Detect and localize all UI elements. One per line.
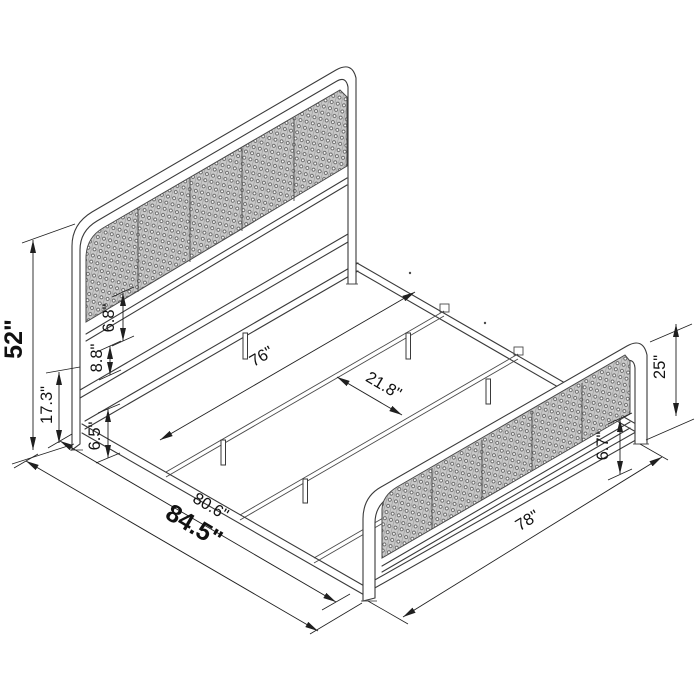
- headboard: [70, 67, 358, 450]
- dim-label-frame-floor-clearance: 6.5": [86, 421, 104, 450]
- dim-label-footboard-rail-gap: 6.7": [594, 431, 612, 460]
- dim-label-footboard-height: 25": [651, 355, 669, 379]
- dim-label-headboard-leg-height: 17.3": [38, 386, 56, 424]
- footboard: [361, 343, 649, 601]
- headboard-cane-panel: [86, 90, 347, 322]
- dim-label-overall-height: 52": [0, 319, 28, 359]
- isometric-bed-drawing: 52" 17.3" 6.8" 8.8" 6.5" 25" 6.7" 76" 21…: [0, 0, 700, 700]
- dim-label-slat-spacing: 21.8": [363, 368, 405, 403]
- dim-label-overall-width: 78": [512, 507, 542, 535]
- dim-label-headboard-panel-gap: 6.8": [100, 303, 118, 332]
- bed-frame-dimension-diagram: 52" 17.3" 6.8" 8.8" 6.5" 25" 6.7" 76" 21…: [0, 0, 700, 700]
- dim-label-headboard-rail-gap: 8.8": [88, 343, 106, 372]
- dim-label-slat-span-width: 76": [246, 343, 276, 371]
